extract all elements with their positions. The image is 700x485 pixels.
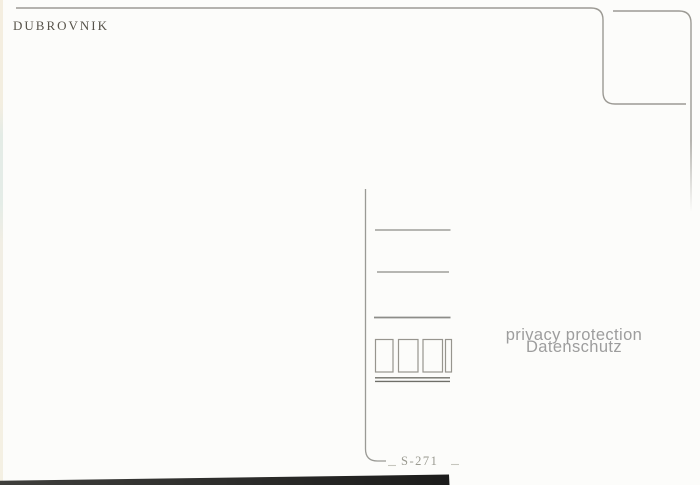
- top-border-and-stamp-left: [16, 8, 686, 104]
- postal-code-box-1: [376, 340, 394, 373]
- privacy-watermark: privacy protection Datenschutz: [490, 330, 658, 353]
- stamp-box: [613, 11, 691, 140]
- postcard-linework: [0, 0, 700, 485]
- postcard-back: DUBROVNIK privacy protection Datenschutz…: [0, 0, 700, 485]
- postal-code-box-4-partial: [446, 340, 452, 373]
- scan-edge-band: [0, 475, 450, 485]
- serial-number: S-271: [401, 454, 438, 469]
- postcard-title: DUBROVNIK: [13, 18, 109, 34]
- postal-code-box-3: [423, 340, 443, 373]
- postal-code-box-2: [399, 340, 419, 373]
